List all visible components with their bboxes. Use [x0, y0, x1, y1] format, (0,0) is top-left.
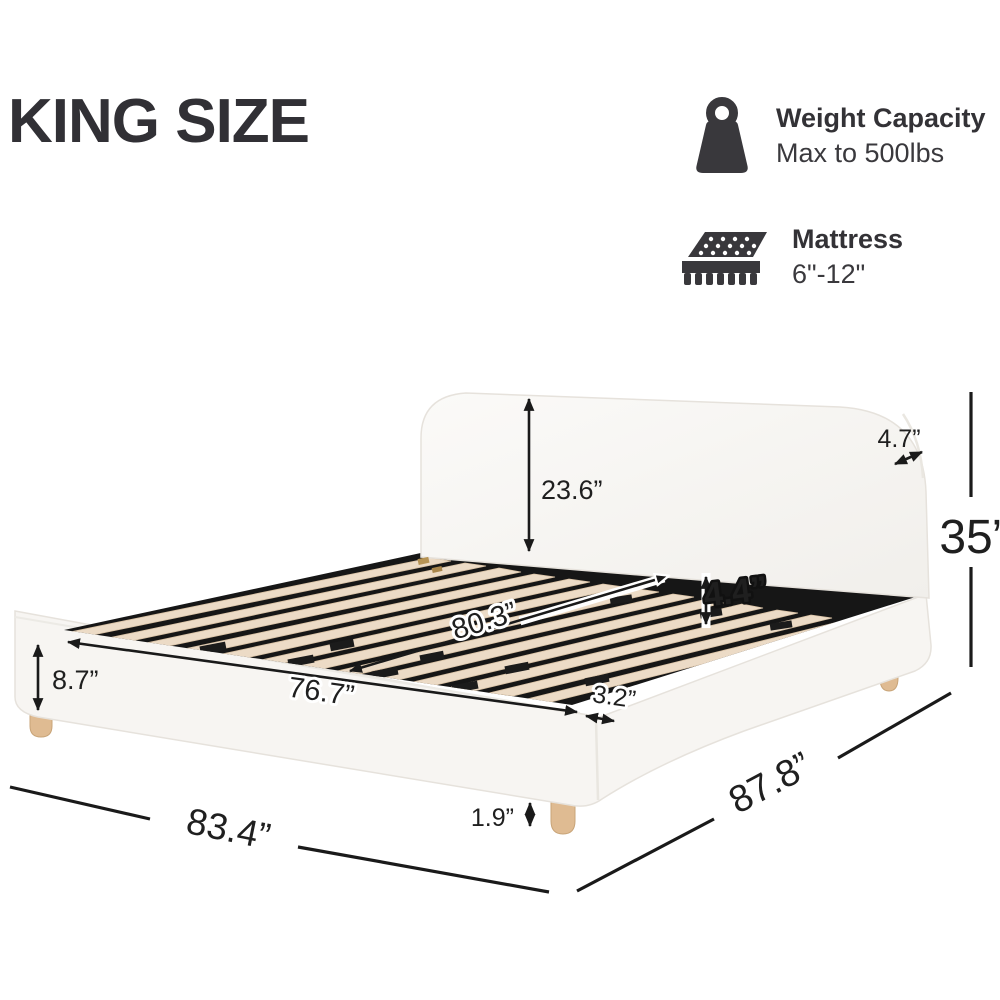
dim-leg-height-label: 1.9”: [471, 804, 514, 832]
dim-overall-width-label: 83.4”: [183, 800, 274, 857]
dim-leg-height: 1.9”: [471, 803, 530, 832]
dim-overall-width-line: [298, 847, 549, 892]
dim-headboard-height-label: 23.6”: [541, 475, 603, 505]
dim-overall-length-line: [577, 819, 714, 891]
dim-overall-length-line: [838, 693, 951, 758]
bed-dimension-scene: 23.6” 4.7” 35” 4.4” 80.3” 76.7”: [0, 0, 1000, 1000]
product-diagram: KING SIZE Weight Capacity Max to 500lbs: [0, 0, 1000, 1000]
dim-overall-height: 35”: [939, 392, 1000, 667]
dim-overall-height-label: 35”: [939, 511, 1000, 564]
dim-overall-width: 83.4”: [10, 787, 549, 892]
dim-rail-edge-label: 3.2”: [591, 680, 638, 714]
dim-overall-length-label: 87.8”: [722, 745, 818, 823]
dim-overall-width-line: [10, 787, 150, 819]
dim-rail-height-label: 8.7”: [52, 665, 99, 695]
dim-rail-to-slat-label: 4.4”: [701, 569, 769, 615]
dim-headboard-thickness-label: 4.7”: [877, 425, 920, 453]
